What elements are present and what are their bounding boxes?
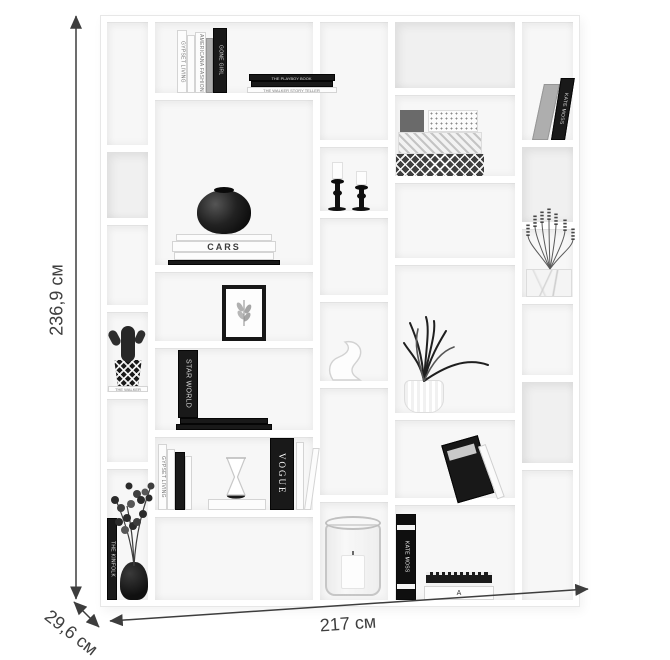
candle <box>341 555 365 589</box>
candle <box>356 171 367 185</box>
black-vase <box>120 562 148 600</box>
patterned-pot <box>113 360 143 386</box>
book-spine-vogue: VOGUE <box>270 438 294 510</box>
book-spine <box>175 452 185 510</box>
candlesticks <box>326 157 372 211</box>
storage-boxes <box>396 110 488 176</box>
shelf-cell-A2 <box>107 152 148 218</box>
candlestick-cup <box>355 185 368 190</box>
picture-frame <box>222 285 266 341</box>
shelf-cell-A3 <box>107 225 148 305</box>
shelf-cell-B6 <box>155 517 313 600</box>
book-flat <box>176 424 272 430</box>
spiral-notebook <box>426 572 492 586</box>
book-flat: THE WALKER STORY TELLER <box>247 87 337 93</box>
glass-candle-holder <box>324 512 382 596</box>
shelf-cell-A1 <box>107 22 148 145</box>
books-upright: GYPSET LIVINGAMERICANA FASHIONGONE GIRL <box>177 28 231 93</box>
product-image: GYPSET LIVINGAMERICANA FASHIONGONE GIRLT… <box>0 0 670 660</box>
candle <box>332 162 343 179</box>
box-diamond <box>396 154 484 176</box>
book-spine <box>185 456 192 510</box>
book-spine: AMERICANA FASHION <box>195 32 206 93</box>
book-spine: KATE MOSS <box>396 514 416 600</box>
book-flat: THE WALKER STORY TELLER <box>108 386 148 392</box>
decor-graphic <box>325 339 371 381</box>
eucalyptus-plant: THE KINFOLK <box>107 466 155 600</box>
book-spine <box>206 38 213 93</box>
book-spine <box>296 442 304 510</box>
marble-pot <box>526 269 572 297</box>
hourglass-and-books: GYPSET LIVINGVOGUE <box>158 436 310 510</box>
decor-graphic <box>396 311 492 383</box>
decor-graphic <box>107 466 155 566</box>
decor-graphic <box>522 205 578 271</box>
round-vase <box>197 190 251 234</box>
books-flat-stack: THE WALKER STORY TELLERTHE PLAYBOY BOOK <box>244 74 339 93</box>
lavender-in-marble-pot <box>522 205 578 297</box>
book-title: VOGUE <box>277 453 287 495</box>
candlestick-knob <box>357 193 366 199</box>
book-flat <box>168 260 280 265</box>
decor-graphic <box>223 457 249 499</box>
book-spine: GYPSET LIVING <box>177 30 187 93</box>
leaning-book <box>455 432 511 498</box>
shelf-cell-E5 <box>522 382 573 463</box>
cactus-plant: THE WALKER STORY TELLER <box>108 294 150 392</box>
bookshelf: GYPSET LIVINGAMERICANA FASHIONGONE GIRLT… <box>0 0 670 660</box>
book-flat: A <box>424 586 494 600</box>
shelf-cell-E4 <box>522 304 573 375</box>
cactus-arm <box>107 329 122 347</box>
shelf-cell-D1 <box>395 22 515 88</box>
book-spine <box>187 35 195 93</box>
book-flat <box>208 499 266 510</box>
book-spine <box>167 449 175 510</box>
book-flat: THE PLAYBOY BOOK <box>249 74 335 81</box>
width-dimension-label: 217 см <box>319 612 377 637</box>
glass-rim <box>325 516 381 530</box>
shelf-cell-D3 <box>395 183 515 258</box>
shelf-cell-C5 <box>320 388 388 495</box>
book-cover-art <box>447 443 477 460</box>
book-flat-cars: CARS <box>172 241 276 252</box>
box-checker <box>398 132 482 154</box>
book-flat <box>176 234 272 241</box>
standing-book-on-stack: STAR WORLD <box>176 348 276 430</box>
book-flat <box>174 252 274 260</box>
vase-on-books: CARS <box>168 189 280 265</box>
candle-wick <box>352 551 354 555</box>
height-dimension-label: 236,9 см <box>47 264 68 335</box>
cactus-stem <box>121 326 135 362</box>
white-ribbed-pot <box>404 380 444 413</box>
candlestick-cup <box>331 179 344 184</box>
swan-sculpture <box>325 339 371 381</box>
shelf-cell-E6 <box>522 470 573 600</box>
book-spine: STAR WORLD <box>178 350 198 418</box>
book-flat <box>180 418 268 424</box>
vase-neck <box>214 187 234 193</box>
shelf-cell-C3 <box>320 218 388 295</box>
decor-graphic <box>231 296 257 330</box>
leaning-books: KATE MOSS <box>530 76 570 140</box>
shelf-cell-A5 <box>107 399 148 462</box>
book-spine: GONE GIRL <box>213 28 227 93</box>
box-solid <box>400 110 424 132</box>
candlestick-knob <box>333 190 342 196</box>
frame-mat <box>226 289 262 337</box>
notebook-and-book: KATE MOSSA <box>396 510 506 600</box>
book-spine: GYPSET LIVING <box>158 444 167 510</box>
box-dotted <box>428 110 478 132</box>
grass-plant <box>396 311 492 413</box>
cactus-arm <box>133 329 146 345</box>
book-flat <box>251 81 333 87</box>
